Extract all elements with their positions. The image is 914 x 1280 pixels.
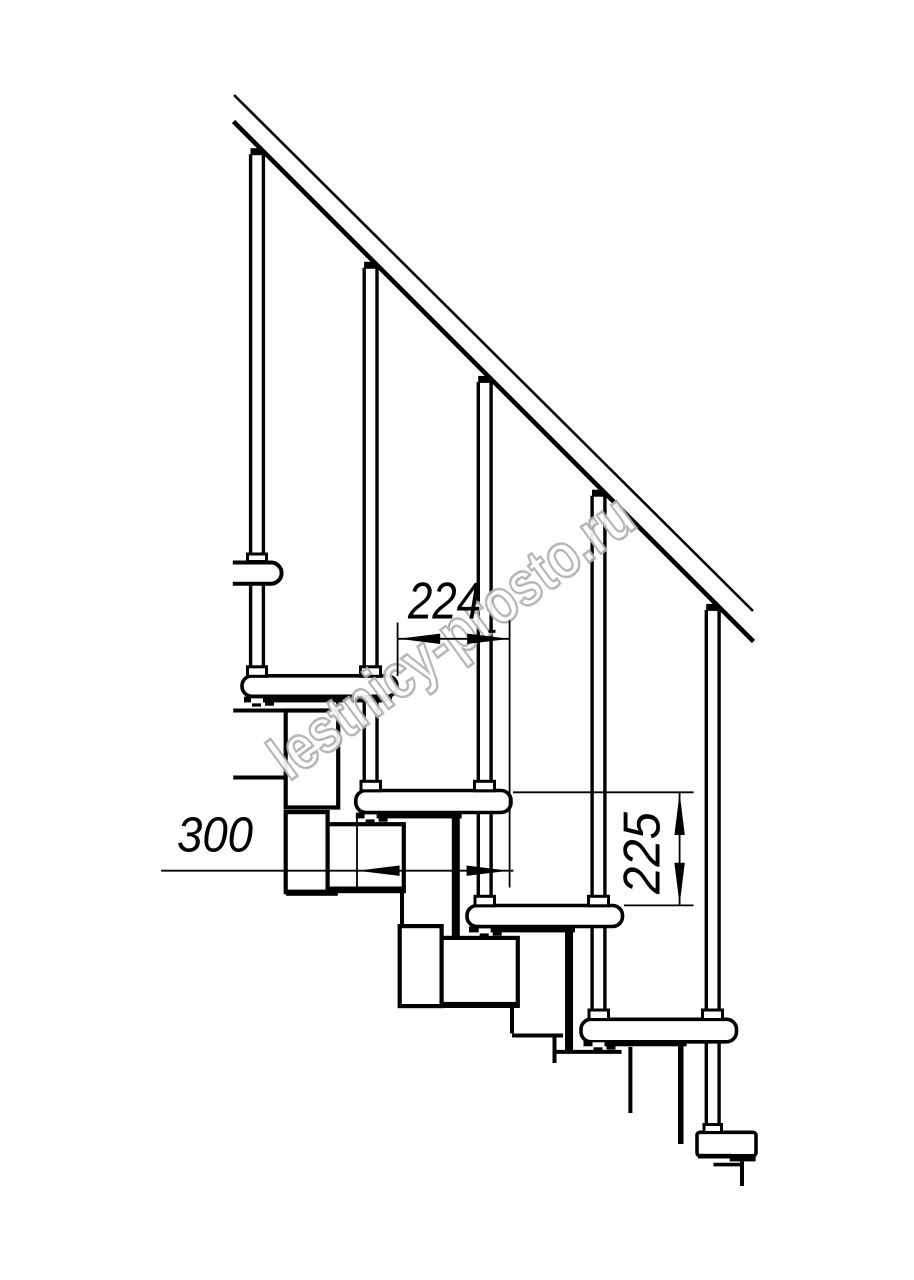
svg-text:300: 300: [177, 809, 253, 863]
svg-text:225: 225: [614, 811, 672, 895]
svg-text:224: 224: [407, 573, 481, 631]
